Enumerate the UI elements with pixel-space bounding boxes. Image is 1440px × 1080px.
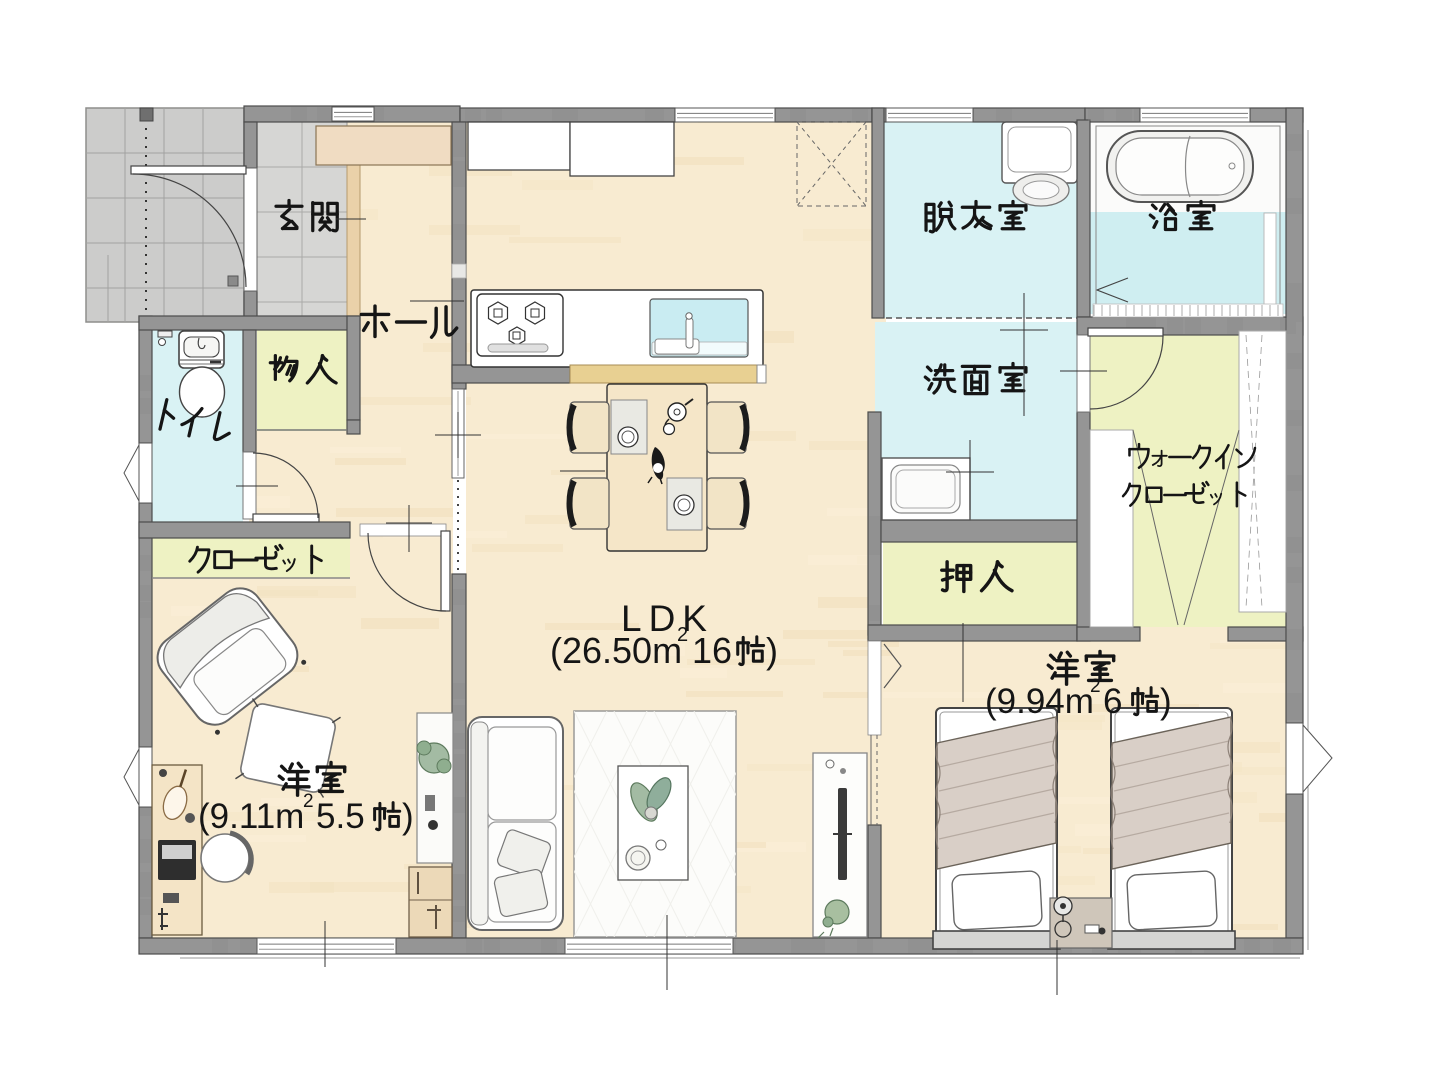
svg-text:6: 6: [1103, 682, 1122, 721]
svg-text:2: 2: [1090, 676, 1101, 697]
svg-text:): ): [766, 630, 778, 671]
svg-text:(9.94m: (9.94m: [985, 682, 1094, 721]
svg-text:2: 2: [303, 791, 314, 812]
svg-text:(26.50m: (26.50m: [550, 630, 682, 671]
svg-text:(9.11m: (9.11m: [198, 797, 304, 836]
svg-text:5.5: 5.5: [316, 797, 365, 836]
svg-text:16: 16: [692, 630, 732, 671]
svg-text:): ): [1160, 682, 1172, 721]
svg-text:2: 2: [677, 624, 688, 646]
svg-text:): ): [402, 797, 414, 836]
